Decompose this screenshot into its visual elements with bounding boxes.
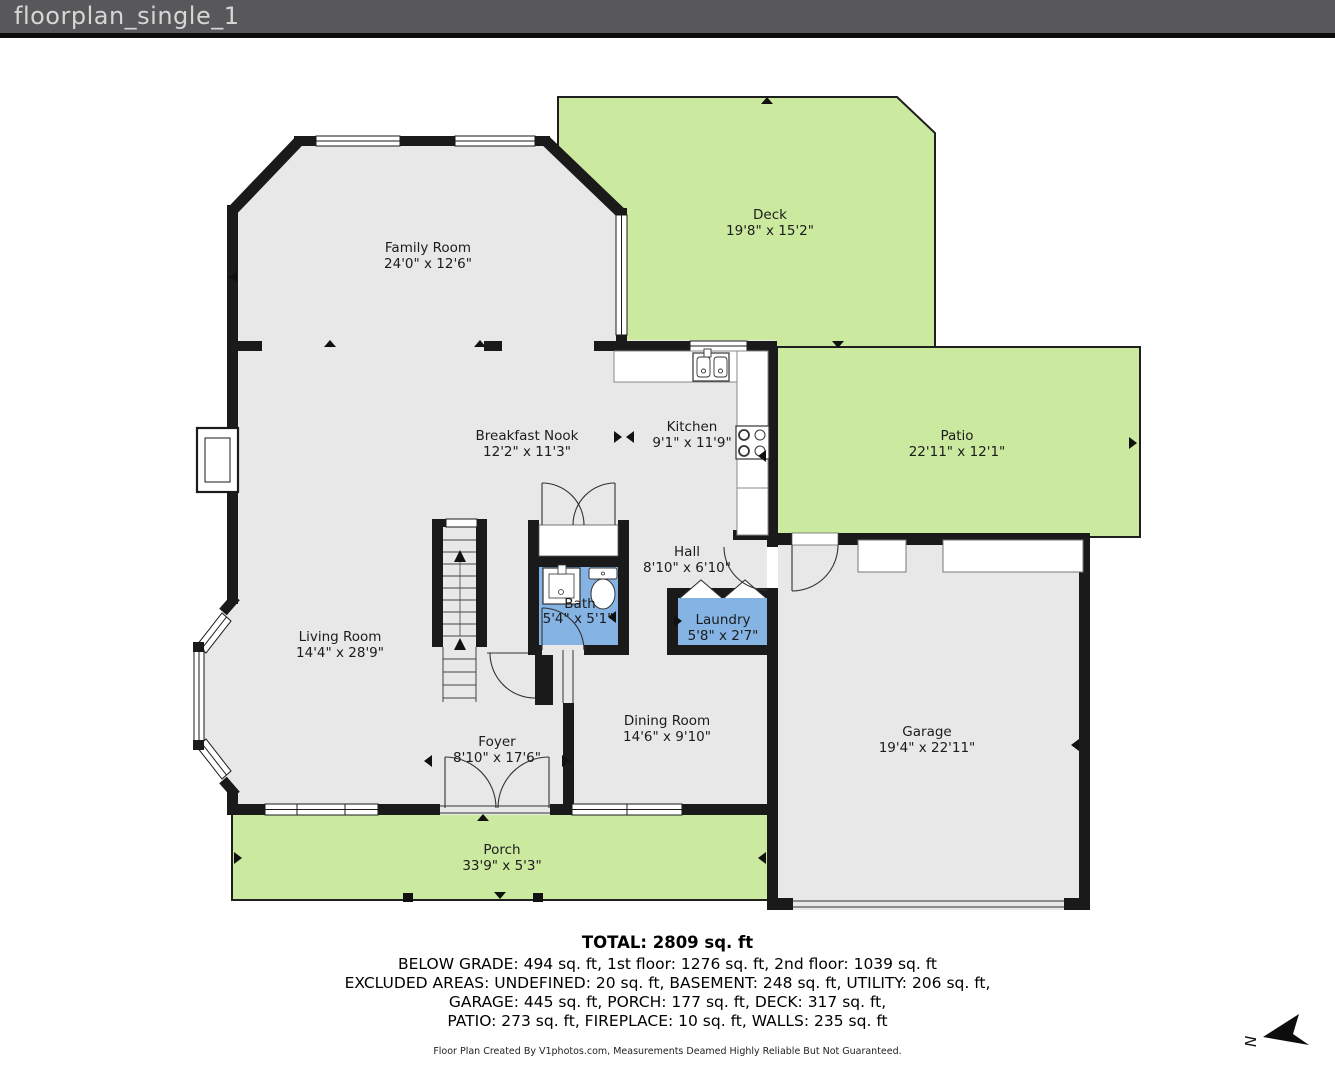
stair-niche [446,519,477,527]
label-deck: Deck [753,207,787,223]
summary-line-2: EXCLUDED AREAS: UNDEFINED: 20 sq. ft, BA… [0,974,1335,993]
label-hall: Hall [674,544,700,560]
floorplan-drawing: Family Room 24'0" x 12'6" Deck 19'8" x 1… [0,0,1335,1080]
label-porch: Porch [483,842,520,858]
dims-family-room: 24'0" x 12'6" [384,256,472,272]
label-foyer: Foyer [478,734,516,750]
dims-porch: 33'9" x 5'3" [462,858,541,874]
dims-foyer: 8'10" x 17'6" [453,750,541,766]
label-kitchen: Kitchen [667,419,718,435]
summary-line-3: GARAGE: 445 sq. ft, PORCH: 177 sq. ft, D… [0,993,1335,1012]
dims-breakfast-nook: 12'2" x 11'3" [483,444,571,460]
dims-garage: 19'4" x 22'11" [879,740,976,756]
dims-hall: 8'10" x 6'10" [643,560,731,576]
label-family-room: Family Room [385,240,471,256]
window-title-bar: floorplan_single_1 [0,0,1335,38]
summary-total: TOTAL: 2809 sq. ft [0,933,1335,952]
label-garage: Garage [902,724,951,740]
label-laundry: Laundry [695,612,750,628]
dims-laundry: 5'8" x 2'7" [688,628,759,644]
fireplace [197,428,238,492]
dims-living-room: 14'4" x 28'9" [296,645,384,661]
nook-deck-door [690,341,747,351]
window-title: floorplan_single_1 [14,2,240,30]
floorplan-page: floorplan_single_1 [0,0,1335,1080]
label-bath: Bath [564,596,595,612]
garage-storage [858,540,1083,572]
family-deck-window [616,215,627,335]
dims-bath: 5'4" x 5'1" [543,611,614,627]
dims-patio: 22'11" x 12'1" [909,444,1006,460]
summary-line-1: BELOW GRADE: 494 sq. ft, 1st floor: 1276… [0,955,1335,974]
label-patio: Patio [940,428,973,444]
summary-line-4: PATIO: 273 sq. ft, FIREPLACE: 10 sq. ft,… [0,1012,1335,1031]
label-breakfast-nook: Breakfast Nook [476,428,579,444]
credit-line: Floor Plan Created By V1photos.com, Meas… [0,1046,1335,1057]
label-living-room: Living Room [299,629,382,645]
kitchen-sink [693,349,729,381]
dims-deck: 19'8" x 15'2" [726,223,814,239]
area-summary: TOTAL: 2809 sq. ft BELOW GRADE: 494 sq. … [0,933,1335,1031]
label-dining-room: Dining Room [624,713,710,729]
dims-dining-room: 14'6" x 9'10" [623,729,711,745]
dims-kitchen: 9'1" x 11'9" [652,435,731,451]
garage-floor [775,535,1090,910]
